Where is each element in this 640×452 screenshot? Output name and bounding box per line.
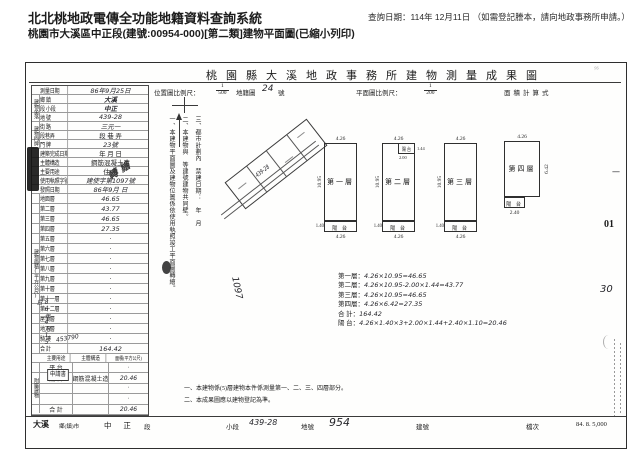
strip-building-label: 建號	[416, 421, 429, 431]
fine-print-marks	[614, 339, 615, 417]
strip-lot-no-hand: 439-28	[249, 418, 277, 427]
strip-lot-label: 地號	[301, 421, 314, 431]
dim-bottom: 2.40	[504, 210, 525, 216]
floor-plan-label: 第四層	[505, 164, 539, 174]
calc-line-label: 第一層：	[338, 273, 364, 280]
strip-subsection-label: 小段	[226, 421, 239, 431]
strip-print-info: 84. 8. 5,000	[576, 421, 607, 428]
system-title: 北北桃地政電傳全功能地籍資料查詢系統	[28, 8, 262, 27]
dim-side: 10.95	[375, 176, 381, 188]
calc-line-label: 陽 台：	[338, 320, 359, 327]
bottom-note-1: 一、本建物係(5)層建物本件係測量第一、二、三、四層部分。	[184, 383, 347, 392]
query-note-text: （如需登記謄本，請向地政事務所申請。）	[473, 12, 630, 22]
floor-plan-label: 第一層	[325, 177, 356, 187]
calc-line: 第三層：4.26×10.95=46.65	[338, 291, 507, 300]
calc-line-formula: 4.26×10.95-2.00×1.44=43.77	[364, 281, 463, 289]
calc-line-formula: 4.26×6.42=27.35	[364, 300, 422, 308]
dim-bottom: 4.26	[444, 234, 477, 240]
margin-mark-01: 01	[604, 219, 614, 230]
received-date-stamp: 86年4月15日	[34, 299, 50, 351]
floor-plan-outline: 第一層	[324, 143, 357, 221]
calc-line-formula: 4.26×10.95=46.65	[364, 291, 427, 299]
query-date-text: 查詢日期：114年 12月11日	[368, 12, 470, 22]
bottom-note-2: 二、本成果圖應以建物登記為準。	[184, 395, 274, 404]
calc-line-label: 合 計：	[338, 311, 359, 318]
balcony-label: 陽 台	[385, 224, 413, 232]
calc-line: 第四層：4.26×6.42=27.35	[338, 300, 507, 309]
dim-top: 4.26	[382, 136, 415, 142]
survey-form-sheet: 桃園縣大溪地政事務所建物測量成果圖 位置圖比例尺： 1 500 地籍圖 24 號…	[25, 62, 627, 449]
balcony-outline: 陽 台	[504, 197, 525, 208]
calc-line-formula: 4.26×1.40×3+2.00×1.44+2.40×1.10=20.46	[359, 319, 507, 327]
dim-bottom: 4.26	[382, 234, 415, 240]
floor-plan-outline: 第四層	[504, 141, 540, 197]
dim-side: 10.95	[437, 176, 443, 188]
dim-side: 6.42	[544, 164, 550, 174]
calc-line: 第一層：4.26×10.95=46.65	[338, 272, 507, 281]
dim-top: 4.26	[444, 136, 477, 142]
balcony-label: 陽 台	[447, 224, 475, 232]
balcony-outline: 陽 台	[382, 221, 415, 232]
balcony-dim: 1.40	[374, 223, 382, 228]
dim-top: 4.26	[324, 136, 357, 142]
floor-plan-outline: 第三層	[444, 143, 477, 221]
margin-mark-30: 30	[600, 284, 613, 295]
top-balcony-outline: 陽 台	[398, 143, 415, 154]
main-box-bottom-rule	[26, 416, 626, 417]
dim-side: 10.95	[317, 176, 323, 188]
calc-line-formula: 4.26×10.95=46.65	[364, 272, 427, 280]
query-date: 查詢日期：114年 12月11日 （如需登記謄本，請向地政事務所申請。）	[368, 11, 630, 23]
calc-line-formula: 164.42	[359, 310, 382, 318]
strip-township-label: 鄉(鎮)市	[59, 422, 79, 430]
strip-building-no-hand: 954	[329, 416, 350, 429]
calc-line-label: 第二層：	[338, 282, 364, 289]
strip-township: 大溪	[33, 419, 49, 430]
calc-line: 合 計：164.42	[338, 310, 507, 319]
calc-line-label: 第三層：	[338, 292, 364, 299]
area-calculations: 第一層：4.26×10.95=46.65第二層：4.26×10.95-2.00×…	[338, 272, 507, 328]
balcony-label: 陽 台	[327, 224, 355, 232]
dim-bottom: 4.26	[324, 234, 357, 240]
strip-section-label: 段	[144, 421, 151, 431]
margin-squiggle	[603, 335, 614, 349]
strip-section: 中 正	[104, 420, 136, 431]
calc-line: 陽 台：4.26×1.40×3+2.00×1.44+2.40×1.10=20.4…	[338, 319, 507, 328]
document-subtitle: 桃園市大溪區中正段(建號:00954-000)[第二類]建物平面圖(已縮小列印)	[28, 26, 355, 41]
floor-plan-label: 第二層	[383, 177, 414, 187]
printout-page: 北北桃地政電傳全功能地籍資料查詢系統 查詢日期：114年 12月11日 （如需登…	[0, 0, 640, 452]
floor-plan-label: 第三層	[445, 177, 476, 187]
balcony-dim: 1.40	[316, 223, 324, 228]
dim-top: 4.26	[504, 134, 540, 140]
calc-line: 第二層：4.26×10.95-2.00×1.44=43.77	[338, 281, 507, 290]
balcony-dim: 1.40	[436, 223, 444, 228]
calc-line-label: 第四層：	[338, 301, 364, 308]
balcony-label: 陽 台	[506, 200, 523, 208]
top-balcony-dim-w: 2.00	[399, 156, 407, 161]
balcony-outline: 陽 台	[444, 221, 477, 232]
balcony-outline: 陽 台	[324, 221, 357, 232]
strip-file-label: 檔次	[526, 421, 539, 431]
margin-dash: —	[612, 167, 620, 176]
application-box-stamp: 申請書	[47, 369, 69, 381]
top-balcony-label: 陽 台	[401, 146, 413, 153]
top-balcony-dim-d: 1.44	[417, 147, 425, 152]
fine-print-marks	[620, 343, 621, 415]
